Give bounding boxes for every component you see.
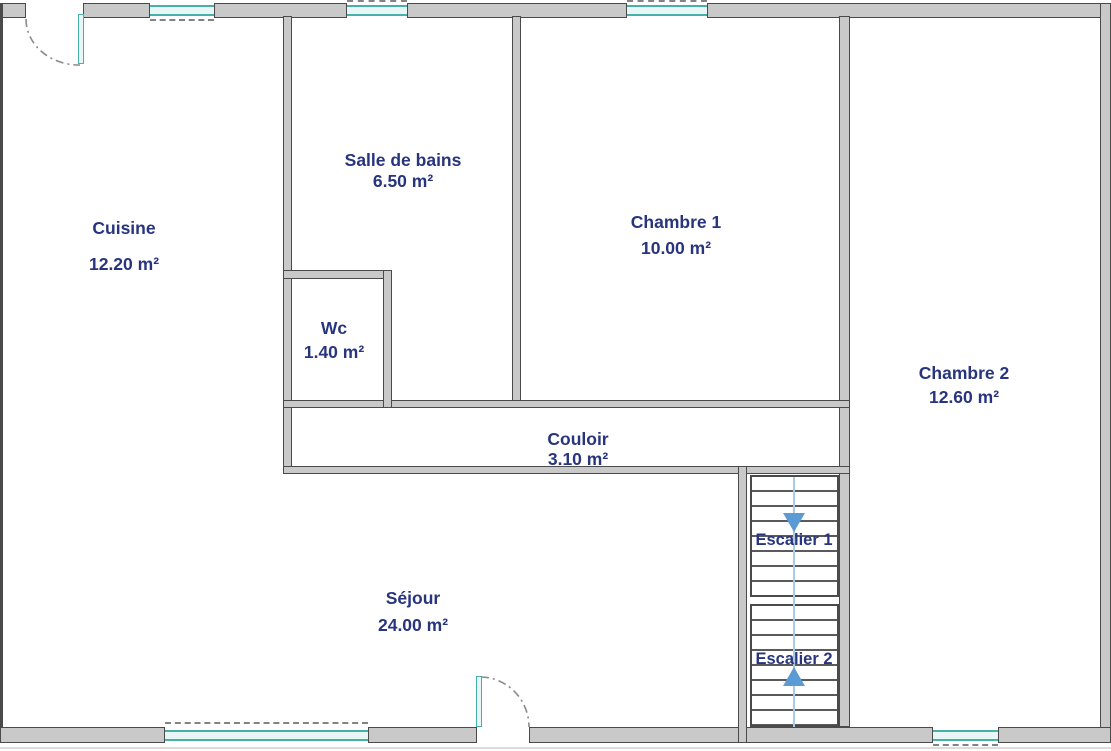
- window-symbol-bathroom: [347, 5, 407, 16]
- wall-top-segment-2: [83, 3, 150, 18]
- wall-bottom-segment-3: [529, 727, 933, 743]
- wall-stairwell-left: [738, 466, 747, 743]
- room-name: Salle de bains: [345, 150, 462, 170]
- window-hatch-chambre2: [933, 744, 998, 746]
- room-name: Cuisine: [92, 218, 155, 238]
- room-name: Séjour: [386, 588, 440, 608]
- sejour-door-leaf: [476, 676, 482, 727]
- wall-top-segment-3: [214, 3, 347, 18]
- room-area: 10.00 m²: [631, 238, 721, 258]
- room-area: 3.10 m²: [547, 449, 608, 469]
- wall-bottom-segment-1: [0, 727, 165, 743]
- entrance-door-arc: [26, 19, 80, 65]
- stair-label-escalier-1: Escalier 1: [755, 531, 832, 549]
- room-name: Wc: [321, 318, 347, 338]
- wall-left: [0, 3, 3, 743]
- room-area: 1.40 m²: [304, 342, 364, 362]
- wall-bottom-segment-2: [368, 727, 477, 743]
- window-hatch-sejour: [165, 722, 368, 724]
- room-name: Chambre 1: [631, 212, 721, 232]
- window-symbol-sejour: [165, 730, 368, 741]
- window-symbol-cuisine: [150, 5, 214, 16]
- wall-bottom-segment-4: [998, 727, 1111, 743]
- wall-chambre1-chambre2: [839, 16, 850, 727]
- room-area: 12.20 m²: [89, 254, 159, 274]
- room-area: 6.50 m²: [345, 171, 462, 191]
- room-name: Chambre 2: [919, 363, 1009, 383]
- room-label-cuisine: Cuisine 12.20 m²: [89, 218, 159, 274]
- wall-wc-right: [383, 270, 392, 408]
- room-label-wc: Wc 1.40 m²: [304, 318, 364, 362]
- window-hatch-bathroom: [347, 0, 407, 2]
- wall-right: [1100, 3, 1111, 743]
- wall-couloir-top: [283, 400, 850, 408]
- room-label-chambre-1: Chambre 1 10.00 m²: [631, 212, 721, 258]
- room-area: 24.00 m²: [378, 615, 448, 635]
- room-label-sejour: Séjour 24.00 m²: [378, 588, 448, 635]
- stair-label-escalier-2: Escalier 2: [755, 650, 832, 668]
- entrance-door-leaf: [78, 14, 84, 64]
- stair-direction-arrow-down: [783, 513, 805, 532]
- page-edge-line: [0, 747, 1111, 749]
- window-hatch-chambre1: [627, 0, 707, 2]
- window-hatch-cuisine: [150, 19, 214, 21]
- room-label-couloir: Couloir 3.10 m²: [547, 429, 608, 469]
- sejour-door-arc: [481, 677, 529, 727]
- room-name: Couloir: [547, 429, 608, 449]
- window-symbol-chambre1: [627, 5, 707, 16]
- floor-plan: Cuisine 12.20 m² Salle de bains 6.50 m² …: [0, 0, 1111, 751]
- window-symbol-chambre2: [933, 730, 998, 741]
- stair-direction-arrow-up: [783, 667, 805, 686]
- room-label-salle-de-bains: Salle de bains 6.50 m²: [345, 150, 462, 191]
- room-label-chambre-2: Chambre 2 12.60 m²: [919, 363, 1009, 407]
- room-area: 12.60 m²: [919, 387, 1009, 407]
- wall-bathroom-chambre1: [512, 16, 521, 408]
- wall-top-segment-5: [707, 3, 1111, 18]
- wall-wc-top: [283, 270, 392, 279]
- wall-top-segment-1: [0, 3, 26, 18]
